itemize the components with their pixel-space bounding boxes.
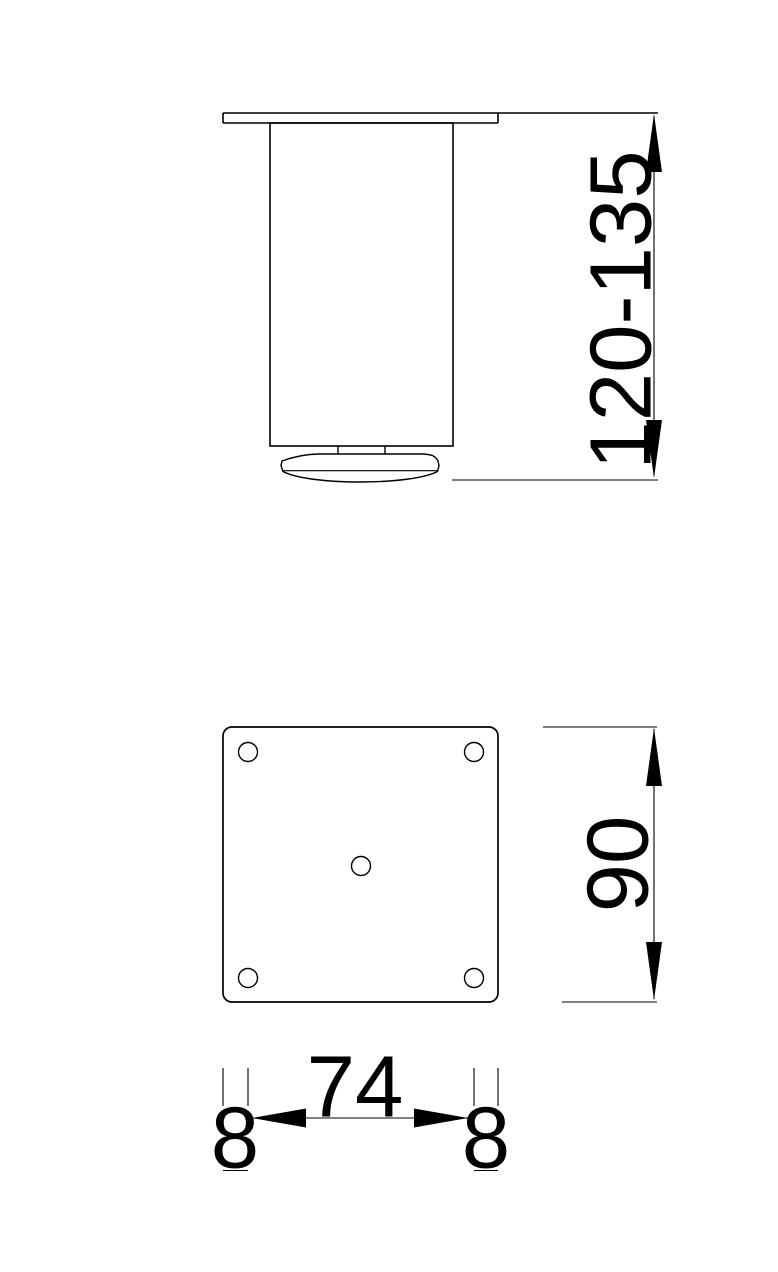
foot-glide-outline: [281, 454, 439, 482]
technical-drawing: 120-135 90 74 8 8: [0, 0, 778, 1272]
dimension-label-edge-offset-right: 8: [462, 1095, 510, 1182]
screw-hole-top-right: [465, 743, 484, 762]
dimension-label-edge-offset-left: 8: [211, 1095, 259, 1182]
dimension-label-leg-height: 120-135: [578, 150, 665, 469]
leg-body: [270, 123, 453, 446]
screw-hole-bottom-right: [465, 969, 484, 988]
screw-hole-top-left: [239, 743, 258, 762]
dimension-label-plate-size: 90: [575, 816, 662, 913]
plate-dim-arrow-down-icon: [646, 942, 662, 1000]
hole-spacing-arrow-left-icon: [252, 1109, 306, 1128]
screw-hole-bottom-left: [239, 969, 258, 988]
dimension-label-hole-spacing: 74: [307, 1044, 404, 1131]
hole-spacing-arrow-right-icon: [414, 1109, 468, 1128]
center-hole: [352, 857, 371, 876]
plate-dim-arrow-up-icon: [646, 728, 662, 786]
mounting-plate-outline: [223, 727, 498, 1002]
